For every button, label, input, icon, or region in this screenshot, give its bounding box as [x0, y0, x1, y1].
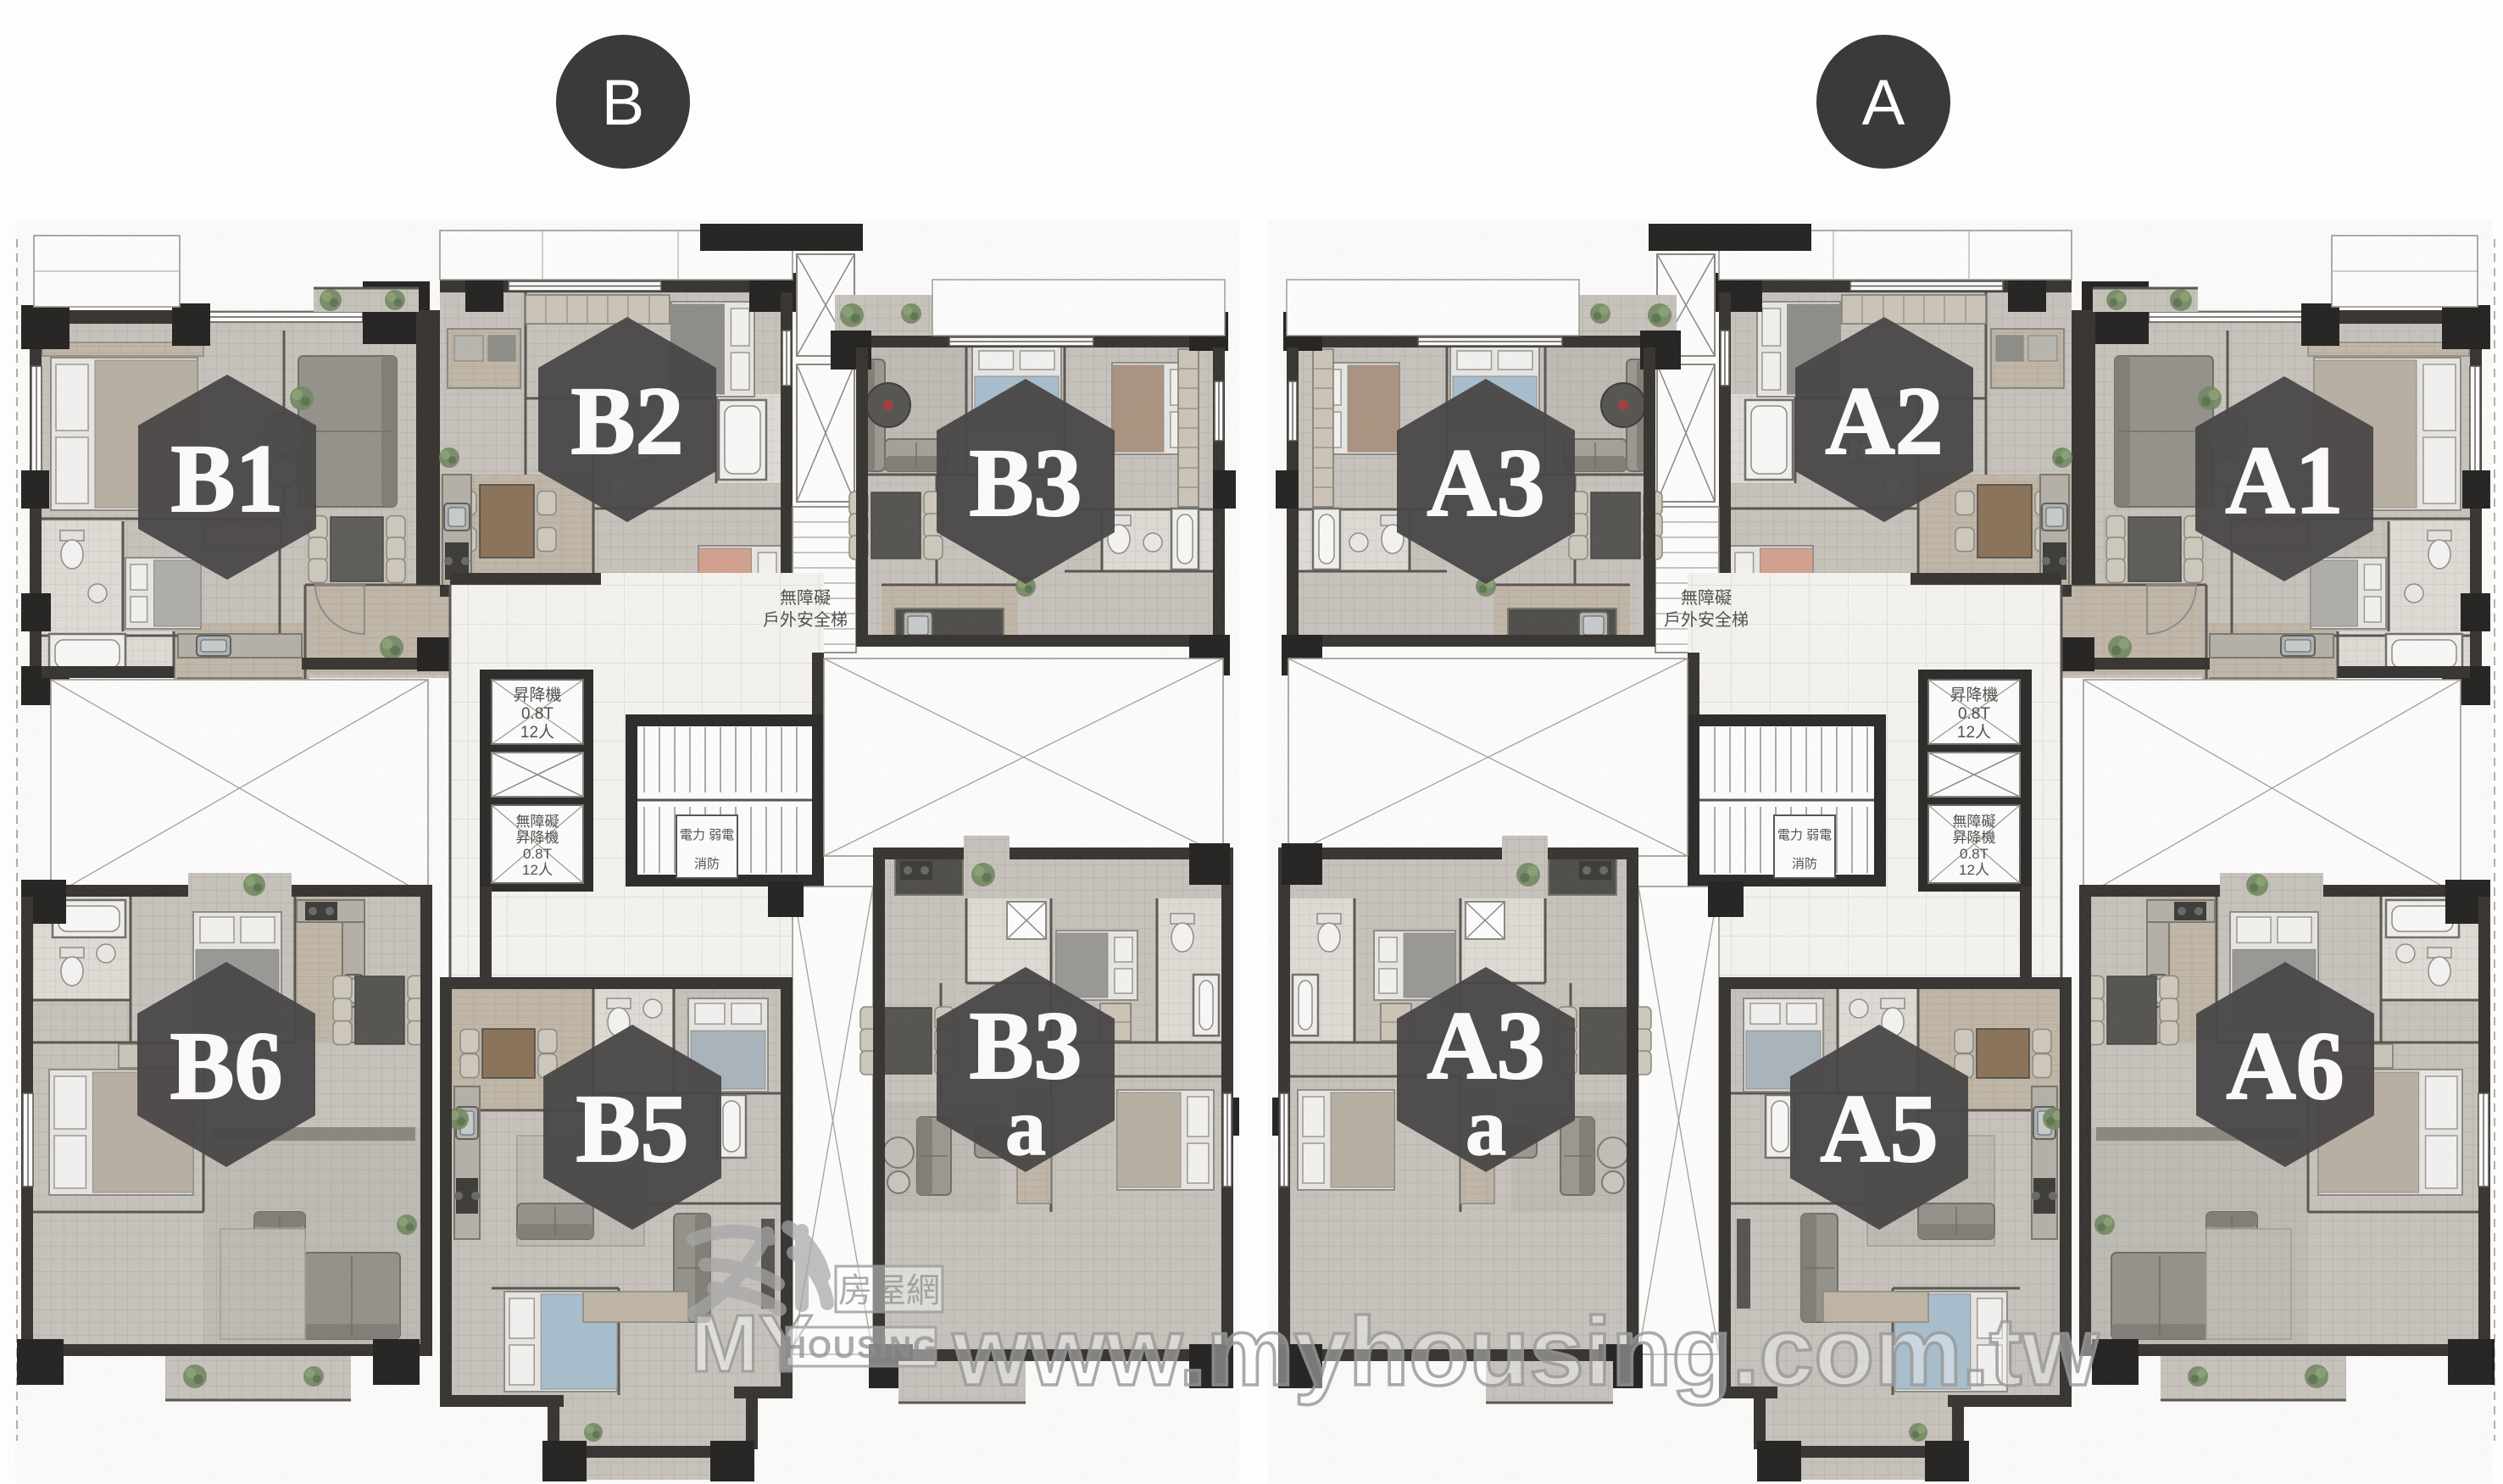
svg-text:B3: B3 [969, 429, 1082, 536]
svg-text:A5: A5 [1820, 1075, 1938, 1182]
svg-text:B6: B6 [170, 1012, 282, 1120]
svg-text:a: a [1466, 1081, 1506, 1172]
svg-text:A6: A6 [2226, 1012, 2344, 1120]
svg-text:A: A [1862, 67, 1905, 139]
svg-text:B1: B1 [170, 425, 283, 532]
svg-text:B: B [602, 67, 645, 139]
svg-text:a: a [1005, 1081, 1046, 1172]
svg-text:A3: A3 [1427, 429, 1544, 536]
svg-text:HOUSING: HOUSING [784, 1330, 938, 1365]
svg-text:A1: A1 [2225, 426, 2343, 534]
svg-text:B5: B5 [576, 1075, 688, 1182]
svg-text:B2: B2 [570, 367, 683, 475]
svg-text:A2: A2 [1825, 367, 1943, 475]
svg-text:房屋網: 房屋網 [838, 1272, 940, 1309]
svg-text:www.myhousing.com.tw: www.myhousing.com.tw [952, 1298, 2099, 1406]
